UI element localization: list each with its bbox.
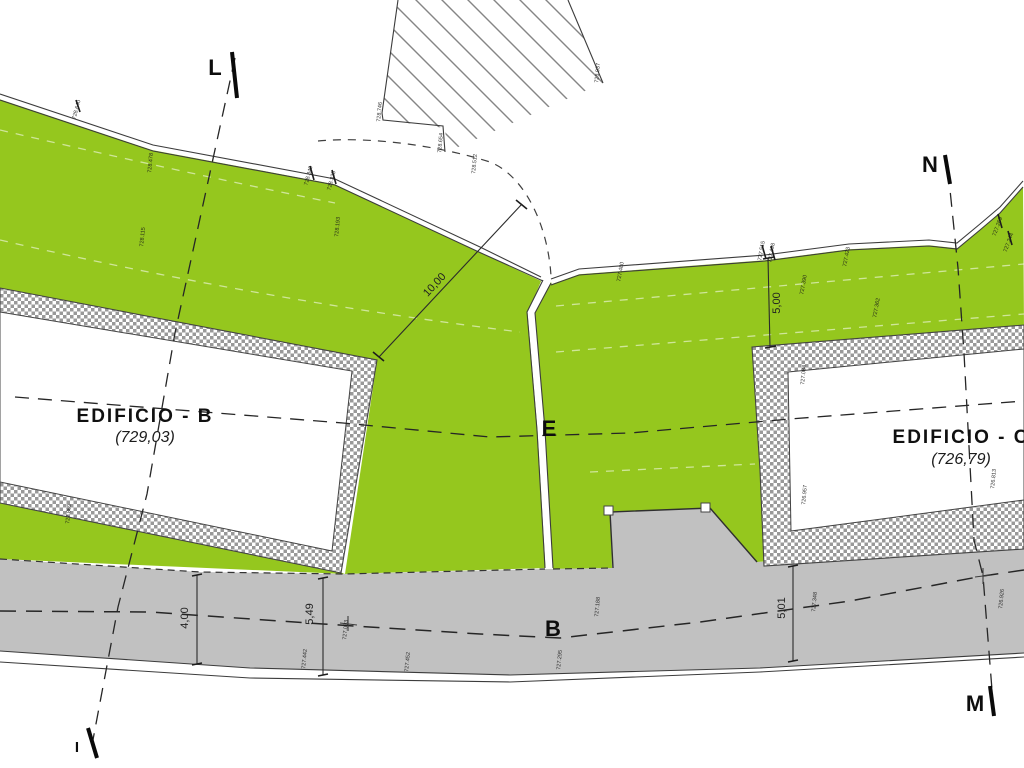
platform-corner-marker xyxy=(604,506,613,515)
platform-corner-marker xyxy=(701,503,710,512)
site-plan-drawing: L I N M E B 10,00 5,00 xyxy=(0,0,1024,768)
section-label-l: L xyxy=(208,55,221,80)
section-label-m: M xyxy=(966,691,984,716)
building-b-name: EDIFICIO - B xyxy=(77,406,214,427)
building-b-elevation: (729,03) xyxy=(115,429,175,446)
dimension-label: 5,01 xyxy=(776,597,788,618)
site-plan-page: L I N M E B 10,00 5,00 xyxy=(0,0,1024,768)
section-label-i: I xyxy=(75,739,79,756)
dimension-label: 5,00 xyxy=(771,292,783,313)
building-c-elevation: (726,79) xyxy=(931,451,991,468)
building-c-name: EDIFICIO - C xyxy=(893,427,1024,448)
section-label-n: N xyxy=(922,152,938,177)
road-axis-label-b: B xyxy=(545,616,561,641)
dimension-label: 5,49 xyxy=(304,603,316,624)
dimension-label: 4,00 xyxy=(179,607,191,628)
section-label-e: E xyxy=(542,416,557,441)
